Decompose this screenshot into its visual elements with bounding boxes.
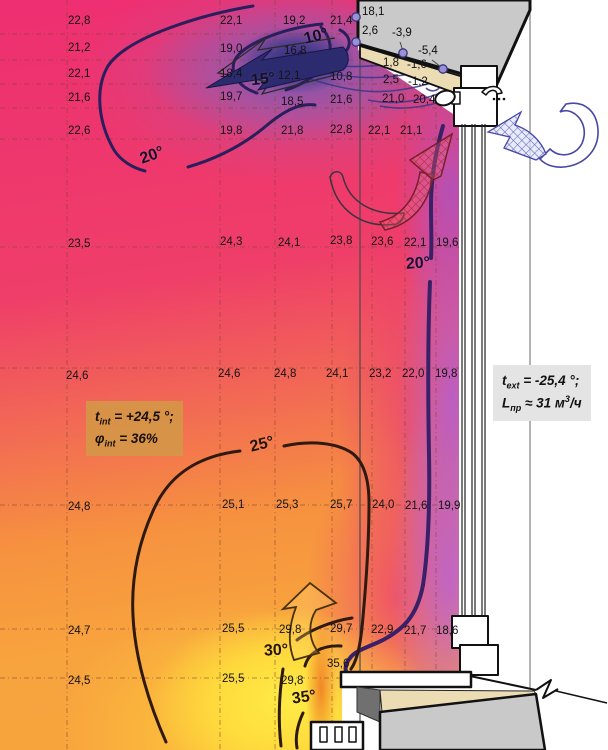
grid-temp-value: 16,8: [284, 46, 306, 58]
wall-point-temp-value: 18,1: [362, 7, 384, 19]
grid-temp-value: 21,8: [281, 126, 303, 138]
grid-temp-value: 10,8: [330, 72, 352, 84]
grid-temp-value: 24,1: [278, 238, 300, 250]
thermal-section-diagram: 22,822,119,221,421,219,016,822,118,412,1…: [0, 0, 608, 750]
interior-temperature-line: tint = +24,5 °;: [95, 407, 174, 429]
grid-temp-value: 29,7: [330, 624, 352, 636]
grid-temp-value: 19,6: [436, 238, 458, 250]
grid-temp-value: 24,6: [66, 371, 88, 383]
heat-plume-arrow: [283, 583, 336, 660]
grid-temp-value: 25,3: [276, 500, 298, 512]
grid-temp-value: 21,7: [404, 626, 426, 638]
grid-temp-value: 18,6: [436, 626, 458, 638]
grid-temp-value: 22,8: [68, 16, 90, 28]
grid-temp-value: 18,4: [220, 69, 242, 81]
grid-temp-value: 22,1: [368, 126, 390, 138]
grid-temp-value: 19,8: [220, 126, 242, 138]
exterior-airflow-line: Lпр ≈ 31 м3/ч: [502, 393, 582, 415]
interior-humidity-line: φint = 36%: [95, 429, 174, 451]
grid-temp-value: 18,5: [281, 97, 303, 109]
grid-temp-value: 22,8: [330, 125, 352, 137]
grid-temp-value: 19,8: [435, 369, 457, 381]
grid-temp-value: 29,8: [281, 676, 303, 688]
grid-temp-value: 23,6: [371, 237, 393, 249]
wall-point-temp-value: 2,6: [362, 26, 378, 38]
exterior-temperature-line: text = -25,4 °;: [502, 371, 582, 393]
grid-temp-value: 22,0: [402, 369, 424, 381]
grid-temp-value: 24,3: [220, 237, 242, 249]
grid-temp-value: 25,1: [222, 500, 244, 512]
grid-temp-value: -1,6: [407, 60, 427, 72]
grid-temp-value: 29,8: [279, 625, 301, 637]
grid-temp-value: 24,5: [68, 676, 90, 688]
grid-temp-value: 25,7: [330, 500, 352, 512]
grid-temp-value: 2,5: [383, 75, 399, 87]
grid-temp-value: 23,2: [369, 369, 391, 381]
grid-temp-value: 22,1: [68, 69, 90, 81]
exterior-slope-line: [556, 691, 607, 703]
grid-temp-value: 35,6: [327, 659, 349, 671]
isotherm-label: 20°: [405, 255, 430, 273]
wall-point-temp-value: -5,4: [418, 46, 438, 58]
grid-temp-value: 23,5: [68, 239, 90, 251]
grid-temp-value: 19,7: [220, 92, 242, 104]
grid-temp-value: 25,5: [222, 624, 244, 636]
grid-temp-value: 22,1: [404, 238, 426, 250]
grid-temp-value: 25,5: [222, 674, 244, 686]
grid-temp-value: 12,1: [278, 71, 300, 83]
grid-temp-value: 24,7: [68, 626, 90, 638]
grid-temp-value: 21,4: [330, 16, 352, 28]
grid-temp-value: 21,6: [68, 93, 90, 105]
radiator-slots: [320, 727, 356, 742]
grid-temp-value: 24,1: [326, 369, 348, 381]
grid-temp-value: -1,2: [408, 77, 428, 89]
wall-point-temp-value: -3,9: [392, 28, 412, 40]
grid-temp-value: 24,8: [68, 502, 90, 514]
exterior-conditions-box: text = -25,4 °; Lпр ≈ 31 м3/ч: [493, 365, 591, 421]
grid-temp-value: 21,6: [330, 95, 352, 107]
isotherm-label: 30°: [264, 642, 289, 659]
wall-break-squiggle: [536, 680, 558, 698]
isotherm-label: 15°: [250, 71, 276, 89]
sill-edge-line: [470, 676, 536, 690]
grid-temp-value: 20,4: [413, 95, 435, 107]
grid-temp-value: 21,0: [382, 94, 404, 106]
grid-temp-value: 19,9: [438, 501, 460, 513]
grid-temp-value: 22,1: [220, 16, 242, 28]
grid-temp-value: 21,6: [405, 501, 427, 513]
rising-warm-arrow: [380, 134, 452, 230]
grid-temp-value: 22,6: [68, 126, 90, 138]
frame-bottom-lower: [460, 645, 498, 675]
grid-temp-value: 24,0: [372, 500, 394, 512]
isotherm-label: 35°: [291, 688, 317, 707]
window-sill: [341, 672, 471, 687]
grid-temp-value: 24,8: [274, 369, 296, 381]
grid-temp-value: 21,2: [68, 43, 90, 55]
interior-conditions-box: tint = +24,5 °; φint = 36%: [86, 401, 183, 456]
isotherm-curves: [100, 6, 443, 748]
glazing-panes: [462, 124, 485, 617]
grid-temp-value: 23,8: [330, 236, 352, 248]
grid-temp-value: 19,0: [220, 44, 242, 56]
infiltration-arrow: [488, 103, 598, 167]
grid-temp-value: 22,9: [371, 625, 393, 637]
grid-temp-value: 19,2: [283, 16, 305, 28]
grid-temp-value: 24,6: [218, 369, 240, 381]
grid-temp-value: 1,8: [383, 58, 399, 70]
grid-temp-value: 21,1: [400, 126, 422, 138]
